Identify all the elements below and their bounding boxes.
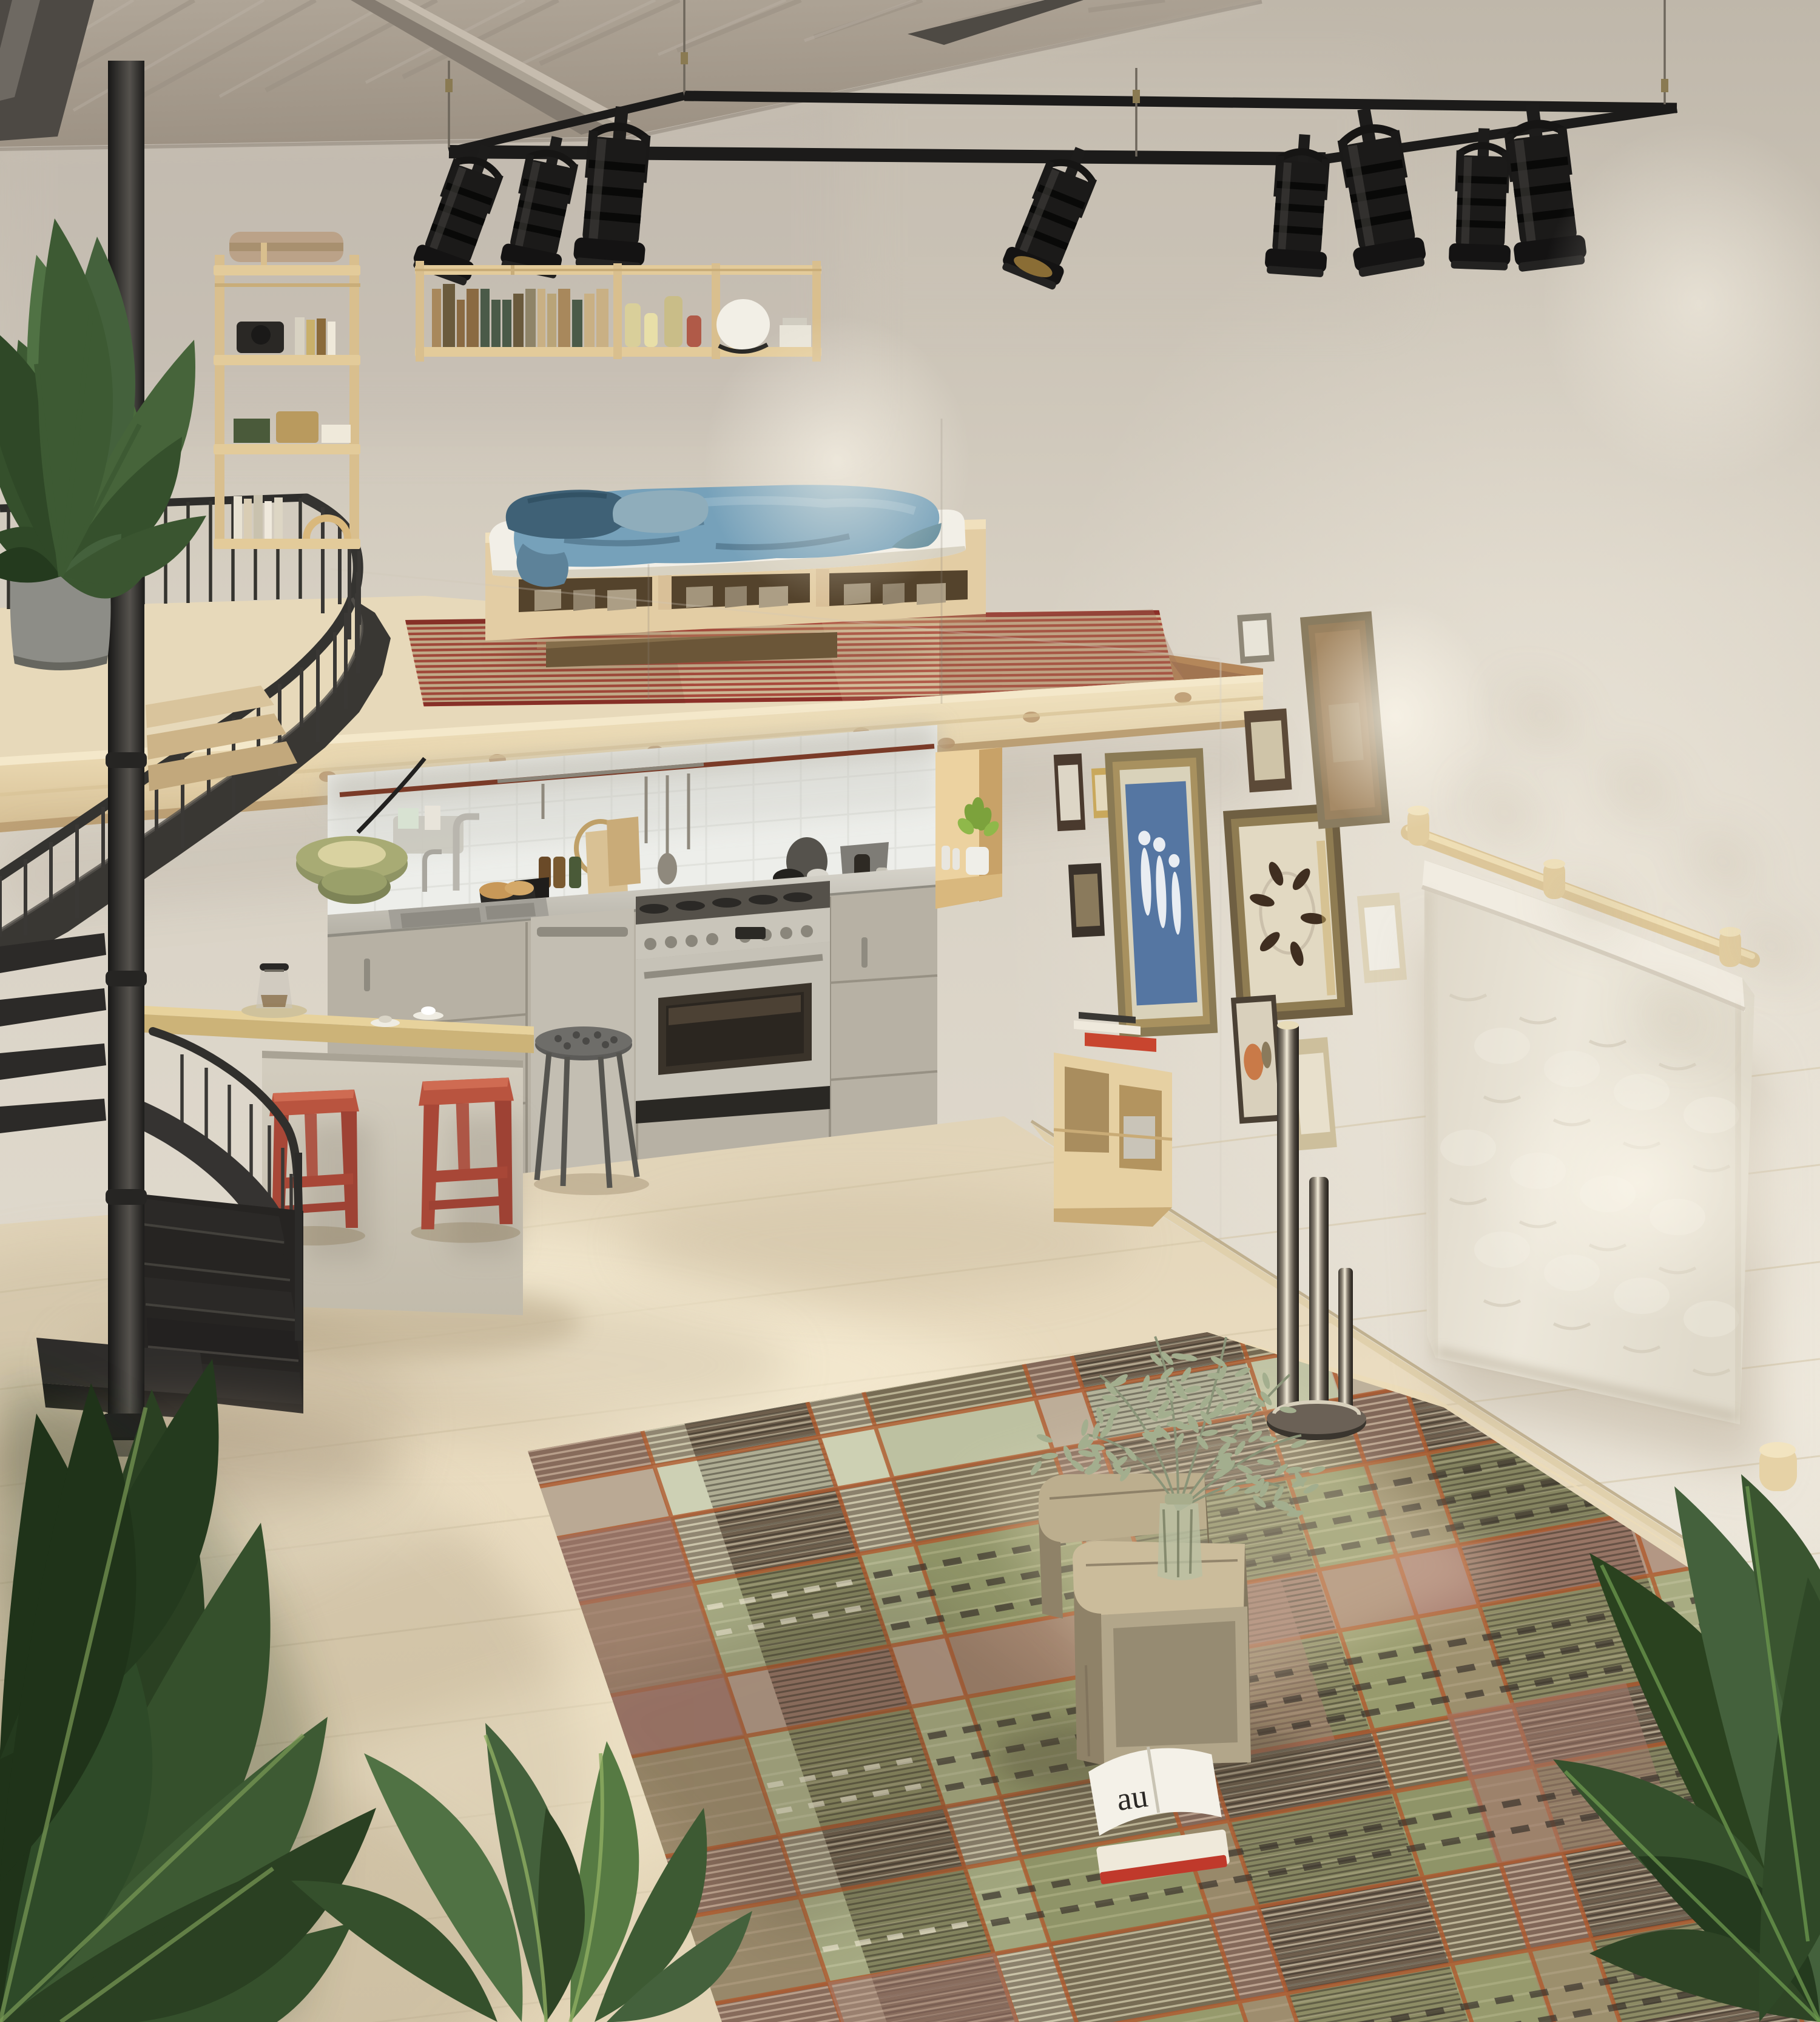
svg-text:au: au bbox=[1114, 1778, 1150, 1818]
